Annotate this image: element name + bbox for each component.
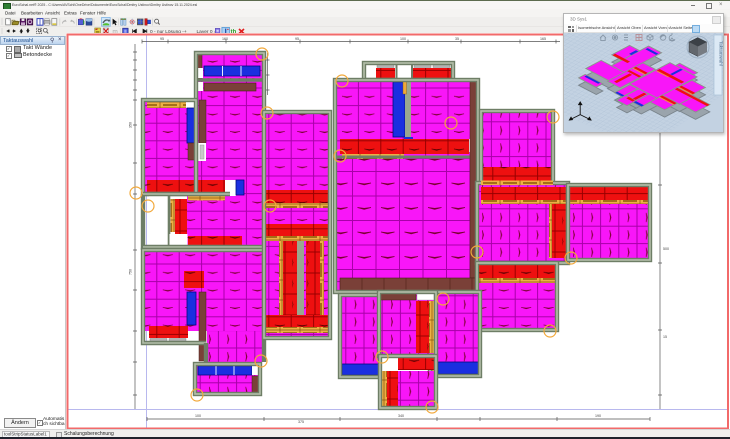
svg-text:190: 190 bbox=[595, 414, 601, 418]
svg-text:165: 165 bbox=[540, 37, 546, 41]
svg-text:95: 95 bbox=[160, 37, 164, 41]
svg-text:750: 750 bbox=[129, 269, 133, 275]
svg-text:15: 15 bbox=[663, 335, 667, 339]
svg-text:500: 500 bbox=[663, 247, 669, 251]
svg-text:100: 100 bbox=[195, 414, 201, 418]
svg-text:Taktauswahl: Taktauswahl bbox=[719, 41, 724, 66]
svg-text:340: 340 bbox=[398, 414, 404, 418]
svg-text:95: 95 bbox=[295, 37, 299, 41]
svg-text:100: 100 bbox=[400, 37, 406, 41]
svg-text:160: 160 bbox=[222, 37, 228, 41]
svg-text:35: 35 bbox=[455, 37, 459, 41]
svg-text:350: 350 bbox=[129, 122, 133, 128]
svg-text:375: 375 bbox=[298, 420, 304, 424]
